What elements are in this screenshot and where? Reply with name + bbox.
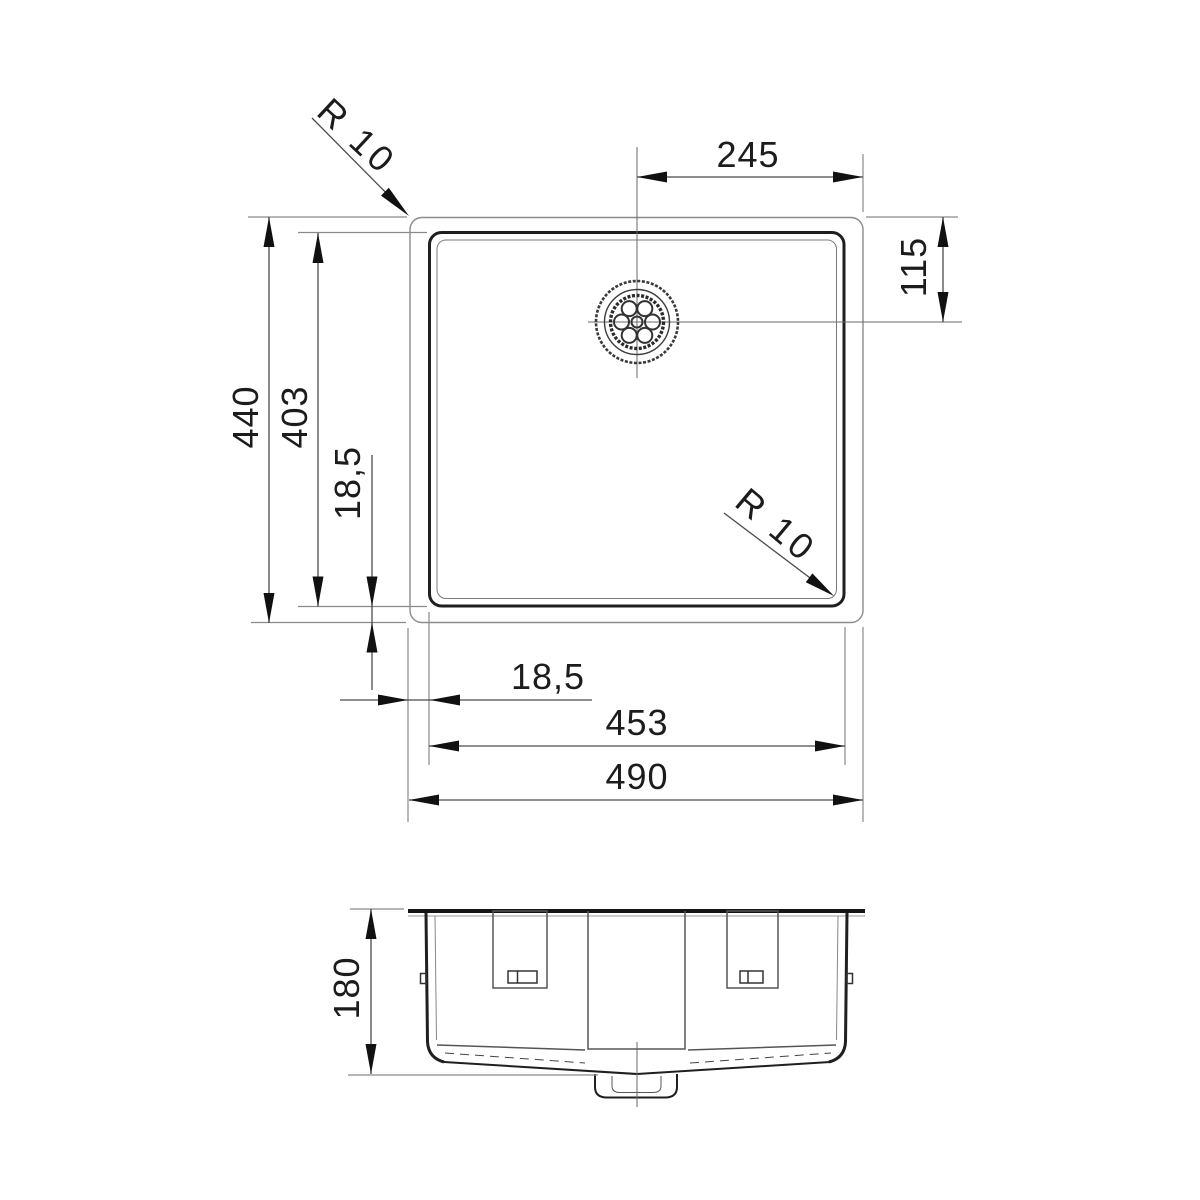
drain-hole — [637, 301, 652, 316]
right-wall-inner — [837, 916, 839, 1040]
arrow-down-icon — [366, 1044, 377, 1074]
dim-115: 115 — [866, 217, 958, 322]
dim-180: 180 — [326, 909, 598, 1075]
drain-hole — [622, 328, 637, 343]
mounting-bracket-left — [493, 911, 547, 988]
arrow-down-icon — [938, 292, 949, 322]
left-wall-inner — [435, 916, 437, 1040]
arrow-left-icon — [409, 795, 439, 806]
radius-callout-inner: R 10 — [724, 480, 834, 596]
sink-technical-drawing-svg: R 10 R 10 245 115 — [0, 0, 1200, 1200]
dim-outer-width-label: 490 — [605, 756, 668, 797]
dim-drain-from-top-label: 115 — [893, 237, 934, 297]
arrow-left-icon — [430, 695, 460, 706]
arrow-left-icon — [429, 741, 459, 752]
dim-403: 403 — [274, 233, 427, 607]
top-view: R 10 R 10 245 115 — [225, 90, 962, 822]
arrow-right-icon — [833, 795, 863, 806]
dim-depth-label: 180 — [326, 956, 367, 1019]
arrow-left-icon — [637, 172, 667, 183]
dim-radius-inner-label: R 10 — [728, 480, 825, 571]
drain-housing — [588, 911, 685, 1049]
front-view: 180 — [326, 909, 865, 1107]
arrow-down-icon — [367, 577, 378, 607]
arrow-up-icon — [264, 217, 275, 247]
drawing-canvas: R 10 R 10 245 115 — [0, 0, 1200, 1200]
base-seam-dashed — [445, 1053, 831, 1063]
dim-18-5-horizontal: 18,5 — [340, 612, 592, 822]
arrow-down-icon — [313, 577, 324, 607]
drain-hole — [637, 328, 652, 343]
dim-radius-outer-label: R 10 — [310, 90, 405, 183]
arrow-up-icon — [313, 233, 324, 263]
dim-18-5-vertical: 18,5 — [327, 446, 378, 690]
wall-tab-left — [421, 974, 427, 984]
bracket-clip — [740, 971, 763, 983]
dim-drain-from-right-label: 245 — [716, 134, 779, 175]
dim-outer-height-label: 440 — [225, 385, 266, 448]
bracket-clip — [508, 971, 537, 983]
dim-453: 453 — [429, 627, 845, 765]
leader-arrowhead-icon — [806, 573, 834, 596]
leader-arrowhead-icon — [381, 188, 409, 216]
arrow-down-icon — [264, 593, 275, 623]
dim-440: 440 — [225, 217, 407, 623]
arrow-right-icon — [378, 695, 408, 706]
drain-hole — [622, 301, 637, 316]
dim-inner-height-label: 403 — [274, 385, 315, 448]
arrow-up-icon — [367, 623, 378, 653]
dim-rim-inset-bottom-label: 18,5 — [327, 446, 368, 520]
arrow-right-icon — [833, 172, 863, 183]
dim-245: 245 — [637, 134, 863, 212]
arrow-up-icon — [938, 217, 949, 247]
mounting-bracket-right — [727, 911, 778, 988]
arrow-right-icon — [815, 741, 845, 752]
wall-tab-right — [847, 974, 853, 984]
drain-stub-outer — [595, 1074, 677, 1098]
arrow-up-icon — [366, 909, 377, 939]
dim-rim-inset-left-label: 18,5 — [511, 656, 585, 697]
dim-inner-width-label: 453 — [605, 702, 668, 743]
radius-callout-outer: R 10 — [310, 90, 409, 216]
